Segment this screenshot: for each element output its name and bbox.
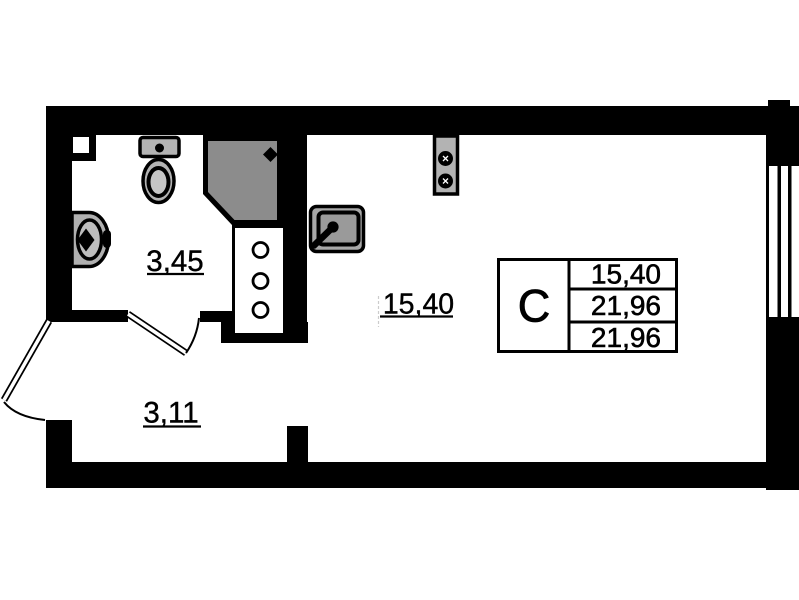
- svg-text:15,40: 15,40: [591, 259, 661, 290]
- svg-text:21,96: 21,96: [591, 290, 661, 321]
- svg-text:21,96: 21,96: [591, 322, 661, 353]
- svg-text:3,11: 3,11: [143, 397, 198, 430]
- svg-text:С: С: [518, 281, 551, 332]
